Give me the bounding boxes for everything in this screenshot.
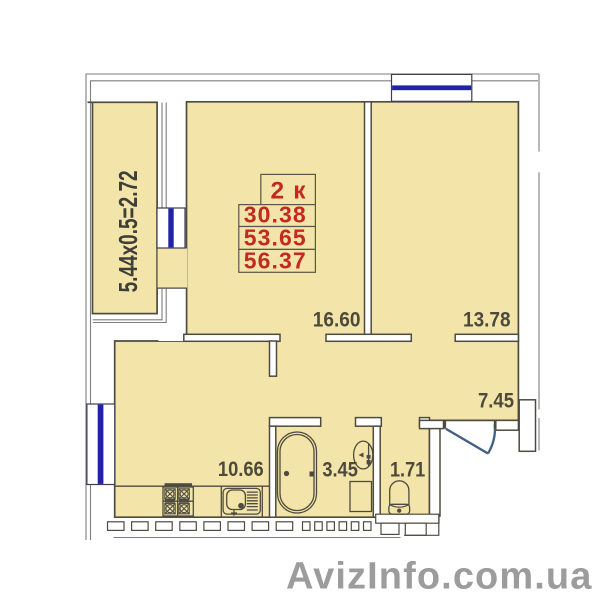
svg-text:16.60: 16.60 — [313, 309, 361, 332]
svg-text:56.37: 56.37 — [244, 247, 306, 273]
svg-text:13.78: 13.78 — [463, 309, 511, 332]
svg-text:30.38: 30.38 — [244, 202, 306, 228]
svg-text:3.45: 3.45 — [322, 459, 358, 482]
svg-text:1.71: 1.71 — [390, 459, 426, 482]
svg-text:2 к: 2 к — [271, 177, 307, 204]
svg-text:10.66: 10.66 — [218, 458, 264, 481]
svg-text:5.44x0.5=2.72: 5.44x0.5=2.72 — [113, 170, 143, 292]
svg-text:7.45: 7.45 — [478, 390, 514, 413]
svg-text:AvizInfo.com.ua: AvizInfo.com.ua — [286, 556, 592, 598]
